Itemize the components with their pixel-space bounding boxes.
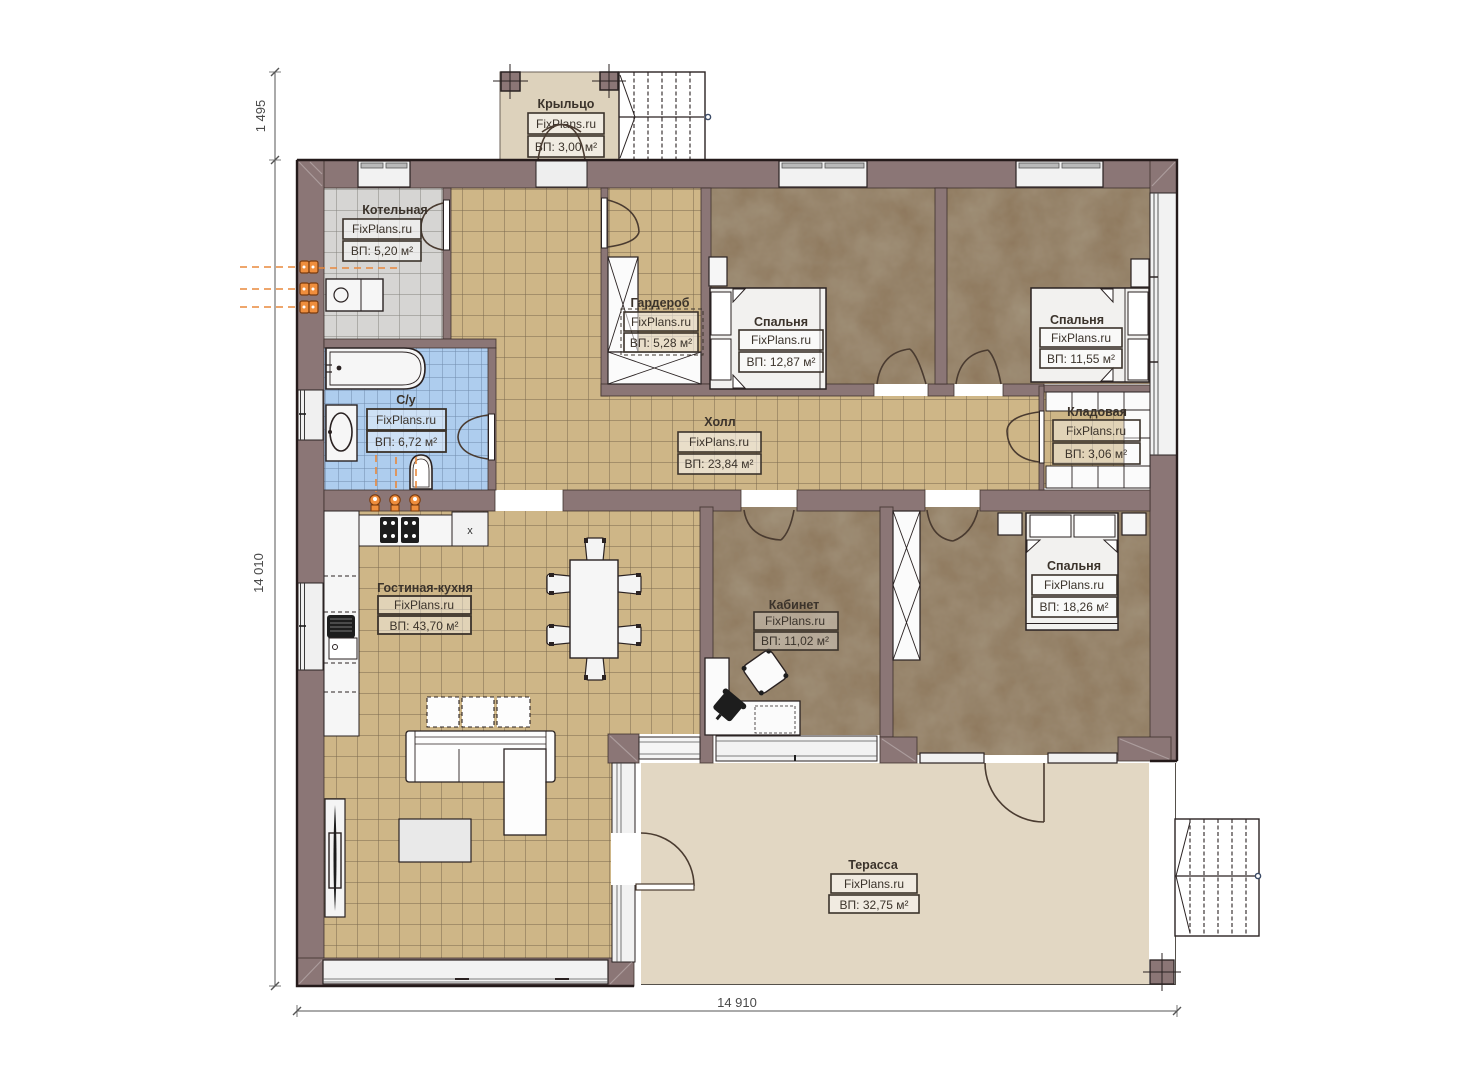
svg-text:ВП: 3,00 м²: ВП: 3,00 м² <box>535 140 597 154</box>
svg-text:Холл: Холл <box>704 415 735 429</box>
svg-text:С/у: С/у <box>396 393 416 407</box>
svg-text:ВП: 5,28 м²: ВП: 5,28 м² <box>630 336 692 350</box>
svg-text:ВП: 43,70 м²: ВП: 43,70 м² <box>390 619 459 633</box>
svg-text:Крыльцо: Крыльцо <box>538 97 595 111</box>
svg-text:ВП: 6,72 м²: ВП: 6,72 м² <box>375 435 437 449</box>
svg-text:FixPlans.ru: FixPlans.ru <box>689 435 749 449</box>
svg-text:1 495: 1 495 <box>253 100 268 133</box>
svg-text:Спальня: Спальня <box>754 315 808 329</box>
svg-text:Гардероб: Гардероб <box>630 296 689 310</box>
svg-text:FixPlans.ru: FixPlans.ru <box>844 877 904 891</box>
svg-text:ВП: 11,02 м²: ВП: 11,02 м² <box>761 634 829 648</box>
svg-text:ВП: 11,55 м²: ВП: 11,55 м² <box>1047 352 1115 366</box>
svg-text:ВП: 3,06 м²: ВП: 3,06 м² <box>1065 447 1127 461</box>
svg-text:ВП: 23,84 м²: ВП: 23,84 м² <box>685 457 754 471</box>
svg-text:FixPlans.ru: FixPlans.ru <box>1044 578 1104 592</box>
svg-text:Гостиная-кухня: Гостиная-кухня <box>377 581 473 595</box>
svg-text:FixPlans.ru: FixPlans.ru <box>536 117 596 131</box>
svg-text:FixPlans.ru: FixPlans.ru <box>376 413 436 427</box>
svg-text:FixPlans.ru: FixPlans.ru <box>631 315 691 329</box>
svg-text:FixPlans.ru: FixPlans.ru <box>394 598 454 612</box>
svg-text:14 010: 14 010 <box>251 553 266 593</box>
svg-text:14 910: 14 910 <box>717 995 757 1010</box>
svg-text:FixPlans.ru: FixPlans.ru <box>765 614 825 628</box>
svg-text:FixPlans.ru: FixPlans.ru <box>1066 424 1126 438</box>
svg-text:Терасса: Терасса <box>848 858 899 872</box>
svg-text:Спальня: Спальня <box>1050 313 1104 327</box>
svg-text:ВП: 32,75 м²: ВП: 32,75 м² <box>840 898 909 912</box>
svg-text:ВП: 12,87 м²: ВП: 12,87 м² <box>747 355 816 369</box>
svg-text:Спальня: Спальня <box>1047 559 1101 573</box>
svg-text:FixPlans.ru: FixPlans.ru <box>1051 331 1111 345</box>
svg-text:ВП: 5,20 м²: ВП: 5,20 м² <box>351 244 413 258</box>
svg-text:FixPlans.ru: FixPlans.ru <box>751 333 811 347</box>
svg-text:FixPlans.ru: FixPlans.ru <box>352 222 412 236</box>
svg-text:Кабинет: Кабинет <box>769 598 820 612</box>
svg-text:ВП: 18,26 м²: ВП: 18,26 м² <box>1040 600 1109 614</box>
svg-text:Котельная: Котельная <box>362 203 427 217</box>
svg-text:x: x <box>467 525 473 537</box>
svg-text:Кладовая: Кладовая <box>1067 405 1127 419</box>
